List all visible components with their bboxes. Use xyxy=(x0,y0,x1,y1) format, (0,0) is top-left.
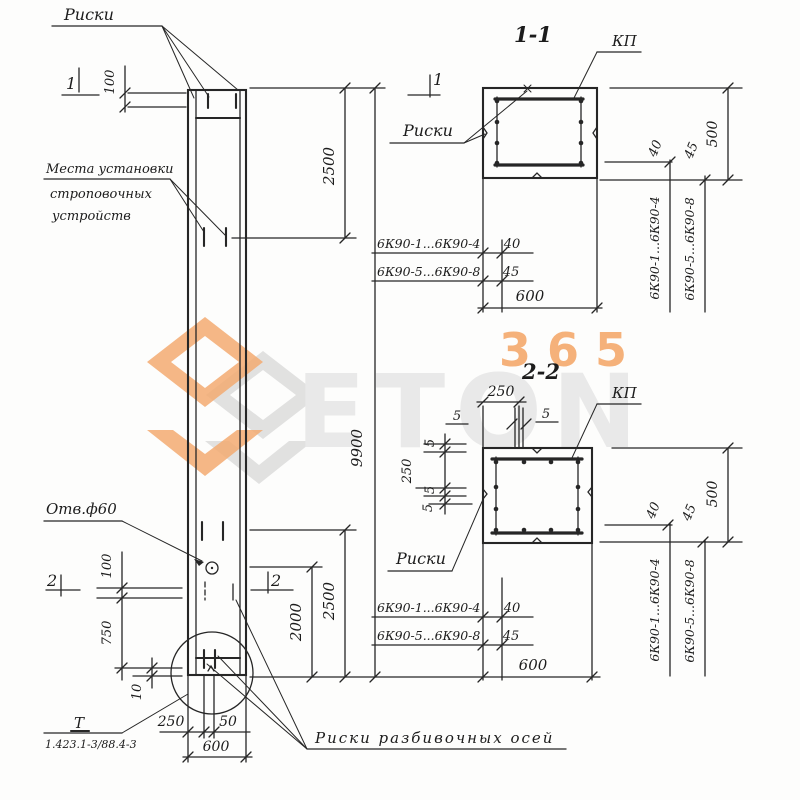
dim-40-s2-left: 40 xyxy=(503,601,521,616)
dim-2000-bottom: 2000 xyxy=(287,602,305,642)
hole-label: Отв.ф60 xyxy=(46,500,117,518)
axes-risk-callout: Риски разбивочных осей xyxy=(207,600,566,749)
dim-9900-total: 9900 xyxy=(348,428,366,467)
dim-750-left: 750 xyxy=(100,621,115,646)
dim-250-s2-left: 250 xyxy=(400,459,415,485)
cut-1-right-label: 1 xyxy=(433,70,443,89)
section-1-bottom-dims: 6К90-1...6К90-4 40 6К90-5...6К90-8 45 60… xyxy=(372,178,602,313)
section-1-1-title: 1-1 xyxy=(514,22,552,47)
dim-2500-bottom: 2500 xyxy=(320,581,338,621)
dim-500-s1: 500 xyxy=(705,121,721,148)
dim-600-bottom: 600 xyxy=(203,739,230,755)
dim-5-s2-left-3: 5 xyxy=(421,504,436,512)
section-1-right-dims: 500 40 45 6К90-1...6К90-4 6К90-5...6К90-… xyxy=(600,83,742,312)
strop-marks-lower xyxy=(202,522,223,540)
riski-axes-label: Риски разбивочных осей xyxy=(314,729,554,747)
detail-circle xyxy=(171,632,253,714)
dim-5-s2-left-1: 5 xyxy=(423,439,438,447)
rebar-cage-1 xyxy=(495,97,584,167)
column-elevation xyxy=(171,90,253,714)
column-drawing: ETON 365 xyxy=(0,0,800,800)
dim-45-s2-right: 45 xyxy=(679,502,699,524)
dim-40-s2-right: 40 xyxy=(643,500,663,522)
riski-s1-label: Риски xyxy=(402,121,453,140)
watermark-number: 365 xyxy=(499,323,643,377)
dim-100-top: 100 xyxy=(103,70,118,95)
kp-label-1: КП xyxy=(611,32,638,50)
dim-250-s2-top: 250 xyxy=(487,384,515,400)
hole-d60 xyxy=(206,562,218,574)
dim-5-s2-top-right: 5 xyxy=(542,407,550,422)
riski-callout-top: Риски xyxy=(52,5,238,98)
hole-callout: Отв.ф60 xyxy=(44,500,204,566)
marks-r14-s2-vertical: 6К90-1...6К90-4 xyxy=(647,558,662,661)
section-1-1: 1-1 КП Риски xyxy=(372,22,742,313)
strop-label-line2: строповочных xyxy=(50,187,153,202)
cut-1-left-label: 1 xyxy=(66,74,76,93)
dim-40-s1-left: 40 xyxy=(503,237,521,252)
dim-600-s2: 600 xyxy=(519,656,548,674)
strop-label-line1: Места установки xyxy=(45,162,174,177)
top-risk-marks xyxy=(208,94,236,108)
dim-100-left: 100 xyxy=(100,554,115,579)
datum-mark: Т xyxy=(74,714,85,732)
marks-r14-s2: 6К90-1...6К90-4 xyxy=(377,600,480,615)
dim-50-bottom: 50 xyxy=(219,714,237,730)
kp-label-2: КП xyxy=(611,384,638,402)
marks-r14-s1-vertical: 6К90-1...6К90-4 xyxy=(647,196,662,299)
dim-5-s2-top-left: 5 xyxy=(453,409,461,424)
dim-10-left: 10 xyxy=(130,684,145,701)
dim-500-s2: 500 xyxy=(705,481,721,508)
marks-r58-s1-vertical: 6К90-5...6К90-8 xyxy=(682,197,697,300)
cut-mark-1-left: 1 xyxy=(62,68,99,95)
dim-250-bottom: 250 xyxy=(157,714,185,730)
marks-r58-s2-vertical: 6К90-5...6К90-8 xyxy=(682,559,697,662)
cut-2-right-label: 2 xyxy=(270,571,281,590)
riski-s2-label: Риски xyxy=(395,549,446,568)
section-2-right-dims: 500 40 45 6К90-1...6К90-4 6К90-5...6К90-… xyxy=(600,443,742,676)
dim-5-s2-left-2: 5 xyxy=(423,486,438,494)
riski-callout-s2: Риски xyxy=(388,497,484,571)
dim-bottom: 250 50 600 xyxy=(157,675,252,762)
riski-top-label: Риски xyxy=(63,5,114,24)
strop-marks-upper xyxy=(204,228,226,246)
marks-r58-s2: 6К90-5...6К90-8 xyxy=(377,628,480,643)
strop-label-line3: устройств xyxy=(51,209,131,224)
dim-600-s1: 600 xyxy=(516,287,545,305)
cut-mark-2-right: 2 xyxy=(251,571,293,593)
cut-mark-1-right: 1 xyxy=(408,70,443,97)
dim-top-left-100: 100 xyxy=(103,66,186,112)
cut-2-left-label: 2 xyxy=(46,571,57,590)
dim-45-s1-right: 45 xyxy=(681,140,701,162)
section-2-2-title: 2-2 xyxy=(521,359,560,384)
strop-callout: Места установки строповочных устройств xyxy=(44,162,226,236)
drawing-sheet: ETON 365 xyxy=(0,0,800,800)
dim-40-s1-right: 40 xyxy=(645,138,665,160)
dim-45-s1-left: 45 xyxy=(502,265,520,280)
cut-mark-2-left: 2 xyxy=(46,571,80,596)
series-ref-text: 1.423.1-3/88.4-3 xyxy=(45,738,137,751)
marks-r58-s1: 6К90-5...6К90-8 xyxy=(377,264,480,279)
dim-45-s2-left: 45 xyxy=(502,629,520,644)
dim-left-bottom: 100 750 10 xyxy=(97,552,182,700)
bottom-risk-marks xyxy=(204,650,215,671)
dim-2500-top: 2500 xyxy=(320,146,338,186)
marks-r14-s1: 6К90-1...6К90-4 xyxy=(377,236,480,251)
